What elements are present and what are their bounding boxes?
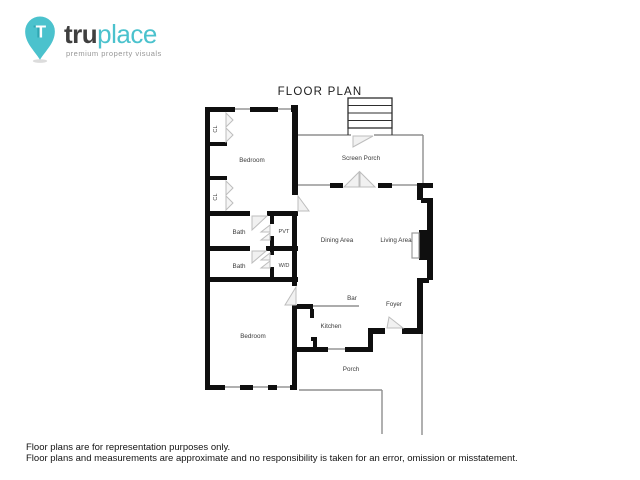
room-label-bar: Bar [347,295,357,302]
room-label-bedroom-bottom: Bedroom [240,333,266,340]
window-marks [225,109,417,387]
wall-lines [205,105,433,390]
disclaimer-line-2: Floor plans and measurements are approxi… [26,454,518,465]
room-label-dining: Dining Area [321,237,354,244]
room-label-porch: Porch [343,366,360,373]
room-label-living: Living Area [380,237,412,244]
room-label-screen-porch: Screen Porch [342,155,381,162]
room-label-closet-bottom: CL [213,193,219,200]
room-label-bath-bottom: Bath [233,263,246,270]
room-label-bath-top: Bath [233,229,246,236]
bifold-doors [226,113,270,268]
room-label-washer-dryer: W/D [279,263,290,269]
page-title: FLOOR PLAN [278,86,363,98]
disclaimer: Floor plans are for representation purpo… [26,443,518,464]
room-label-bedroom-top: Bedroom [239,157,265,164]
room-label-foyer: Foyer [386,301,402,308]
room-label-pvt: PVT [279,229,290,235]
stairs-icon [348,98,392,135]
floor-plan: FLOOR PLAN [0,0,640,480]
room-label-closet-top: CL [213,125,219,132]
room-label-kitchen: Kitchen [320,323,342,330]
door-swings [252,136,403,328]
disclaimer-line-1: Floor plans are for representation purpo… [26,443,518,454]
fireplace-icon [412,233,419,258]
